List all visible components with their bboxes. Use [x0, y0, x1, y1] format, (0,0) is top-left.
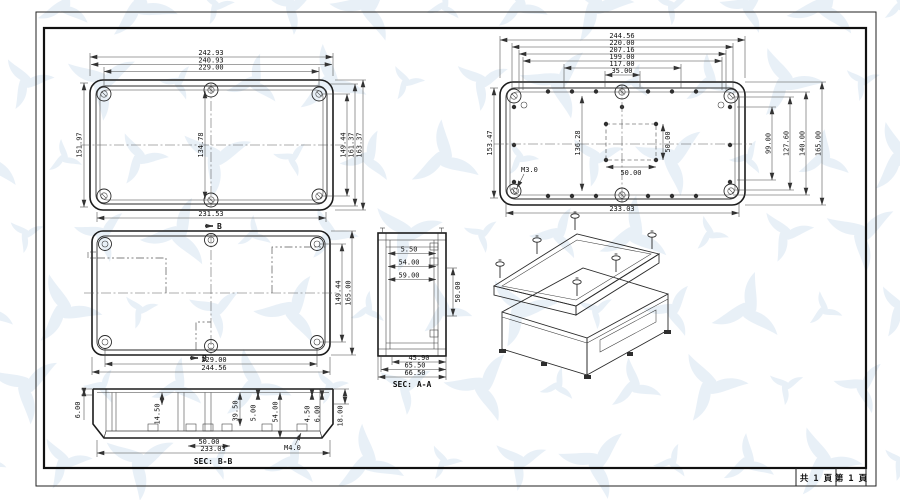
dim-lid-center-height: 134.78 [197, 132, 205, 157]
view-exploded-iso [494, 212, 671, 379]
dim-bb-v6: 6.00 [314, 406, 322, 423]
dim-square-width: 50.00 [620, 169, 641, 177]
section-marker-b-bottom: B [202, 354, 207, 363]
footer-page-number: 第 1 頁 [835, 473, 868, 484]
section-aa-label: SEC: A-A [393, 380, 432, 389]
dim-bb-v4: 54.00 [272, 401, 280, 422]
dim-aa-depth-2: 54.00 [398, 259, 419, 267]
dim-aa-bottom-3: 66.50 [404, 369, 425, 377]
view-base-inside: 149.44 165.00 229.00 244.56 B B [84, 222, 356, 375]
dim-inside-right-2: 165.00 [345, 280, 353, 305]
dim-base-right-4: 165.00 [815, 131, 823, 156]
dim-bb-v1: 14.50 [154, 403, 162, 424]
dim-inside-right-1: 149.44 [335, 280, 343, 305]
dim-inside-bottom-2: 244.56 [201, 364, 226, 372]
section-marker-b-top: B [217, 222, 222, 231]
dim-bb-right: 18.00 [337, 405, 345, 426]
view-base-back: 50.00 50.00 136.28 244.56 220.00 207.16 … [486, 32, 826, 217]
dim-lid-bottom: 231.53 [198, 210, 223, 218]
dim-bb-left: 6.00 [74, 402, 82, 419]
dim-base-left: 153.47 [486, 130, 494, 155]
dim-base-top-6: 35.00 [611, 67, 632, 75]
dim-base-right-1: 99.00 [765, 133, 773, 154]
view-section-aa: 5.50 54.00 59.00 50.00 45.90 65.50 66.50… [378, 228, 462, 389]
dim-hole-pattern-height: 136.28 [574, 130, 582, 155]
dim-base-bottom: 233.03 [609, 205, 634, 213]
section-bb-label: SEC: B-B [194, 457, 233, 466]
dim-lid-right-2: 161.37 [348, 132, 356, 157]
engineering-drawing: 共 1 頁 第 1 頁 242.93 240.93 229.00 231.53 … [0, 0, 900, 500]
dim-lid-left-height: 151.97 [76, 132, 84, 157]
drawing-sheet: 共 1 頁 第 1 頁 242.93 240.93 229.00 231.53 … [0, 0, 900, 500]
dim-aa-right: 50.00 [454, 281, 462, 302]
dim-aa-depth-1: 5.50 [401, 246, 418, 254]
dim-lid-screw-spacing: 229.00 [198, 64, 223, 72]
dim-bb-bottom-2: 233.03 [200, 445, 225, 453]
footer-total-pages: 共 1 頁 [800, 473, 833, 484]
dim-aa-depth-3: 59.00 [398, 272, 419, 280]
dim-base-right-2: 127.60 [783, 131, 791, 156]
dim-square-height: 50.00 [664, 131, 672, 152]
view-lid-top: 242.93 240.93 229.00 231.53 151.97 134.7… [76, 49, 367, 222]
dim-bb-v5: 4.50 [304, 406, 312, 423]
dim-lid-right-1: 149.44 [340, 132, 348, 157]
dim-bb-v2: 39.50 [232, 400, 240, 421]
dim-lid-right-3: 163.37 [356, 132, 364, 157]
dim-base-right-3: 140.00 [799, 131, 807, 156]
sheet-frame: 共 1 頁 第 1 頁 [36, 12, 876, 486]
thread-callout-m4: M4.0 [284, 444, 301, 452]
view-section-bb: 6.00 14.50 39.50 5.00 54.00 4.50 6.00 18… [74, 389, 349, 466]
thread-callout-m3: M3.0 [521, 166, 538, 174]
dim-bb-v3: 5.00 [250, 405, 258, 422]
